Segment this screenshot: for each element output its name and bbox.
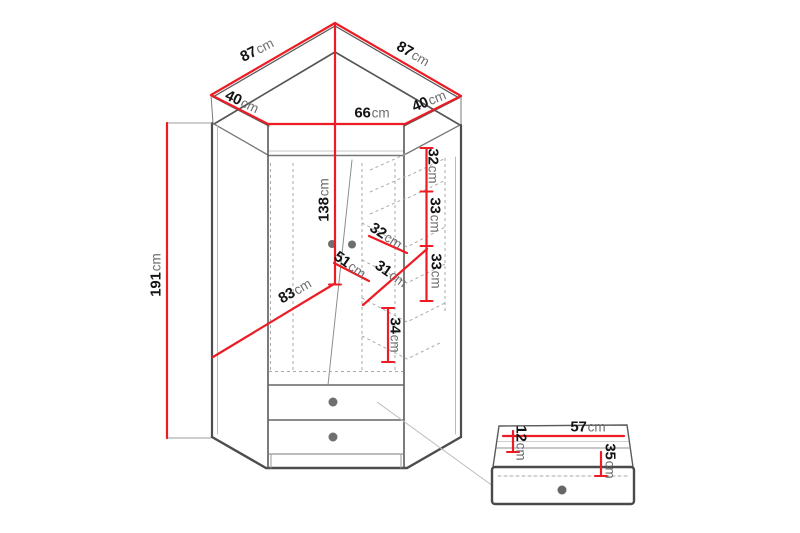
dim-label-34-lower: 34cm [388,317,403,352]
dim-label-12-drawer: 12cm [514,425,529,460]
dim-label-66-front: 66cm [354,106,389,121]
dim-line-83 [213,284,334,357]
detail-drawer-handle [558,486,567,495]
dim-line-87-right [335,23,461,96]
dimension-diagram: 87cm 87cm 40cm 40cm 66cm 138cm 32cm 33cm… [0,0,800,533]
drawer-handle-top [329,398,338,407]
dim-label-138-height: 138cm [317,178,332,221]
extension-lines [167,123,212,438]
wardrobe-drawing [0,0,800,533]
detail-connector-line [377,402,497,489]
dim-label-57-drawer: 57cm [570,420,605,435]
door-handle-right [348,241,356,249]
dim-label-191-total: 191cm [149,253,164,296]
dim-label-33-shelf-2: 33cm [428,197,443,232]
dim-label-33-shelf-3: 33cm [429,253,444,288]
dim-label-35-drawer: 35cm [603,443,618,478]
drawer-handle-bottom [329,433,338,442]
dim-label-32-shelf-1: 32cm [426,148,441,183]
dim-line-87-left [211,23,335,95]
wardrobe-body-outline [212,123,461,468]
